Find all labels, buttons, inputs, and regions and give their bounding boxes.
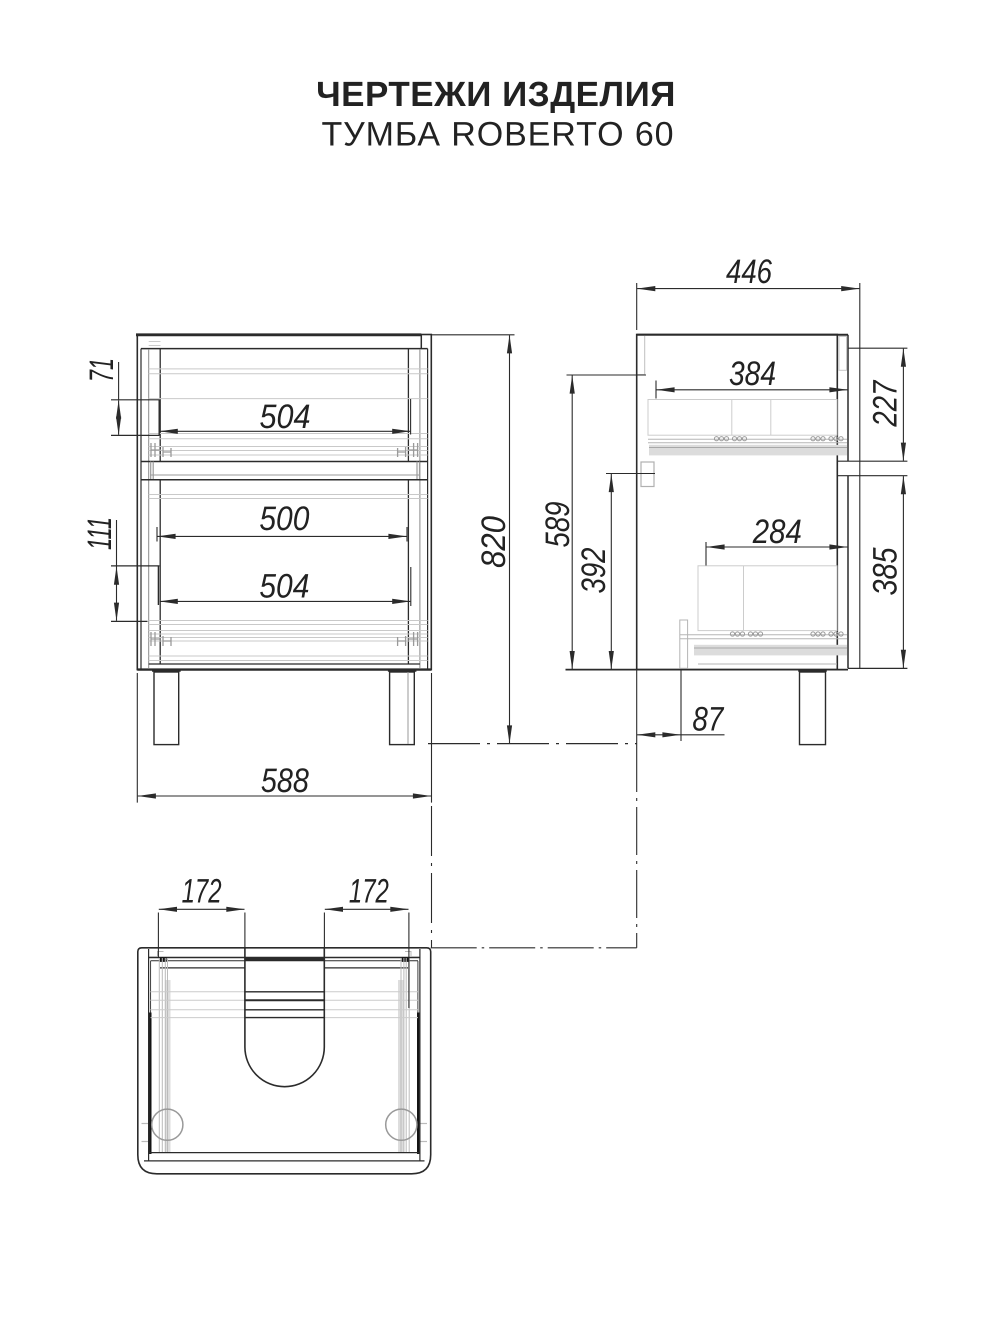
svg-text:172: 172 [349,873,389,911]
svg-text:87: 87 [692,701,724,739]
svg-text:500: 500 [259,500,309,538]
svg-text:504: 504 [260,398,311,436]
svg-text:111: 111 [81,517,119,550]
svg-text:172: 172 [182,873,222,911]
svg-text:504: 504 [259,568,309,606]
svg-text:820: 820 [475,516,513,568]
svg-text:ЧЕРТЕЖИ ИЗДЕЛИЯ: ЧЕРТЕЖИ ИЗДЕЛИЯ [316,75,676,114]
svg-text:227: 227 [867,380,905,428]
svg-text:446: 446 [726,253,772,291]
svg-text:589: 589 [539,501,577,547]
svg-text:392: 392 [575,547,613,593]
svg-text:ТУМБА ROBERTO 60: ТУМБА ROBERTO 60 [322,116,675,154]
svg-text:71: 71 [83,358,121,382]
svg-text:384: 384 [729,355,776,393]
svg-text:284: 284 [752,513,802,551]
svg-text:385: 385 [867,547,905,595]
svg-text:588: 588 [261,762,309,800]
